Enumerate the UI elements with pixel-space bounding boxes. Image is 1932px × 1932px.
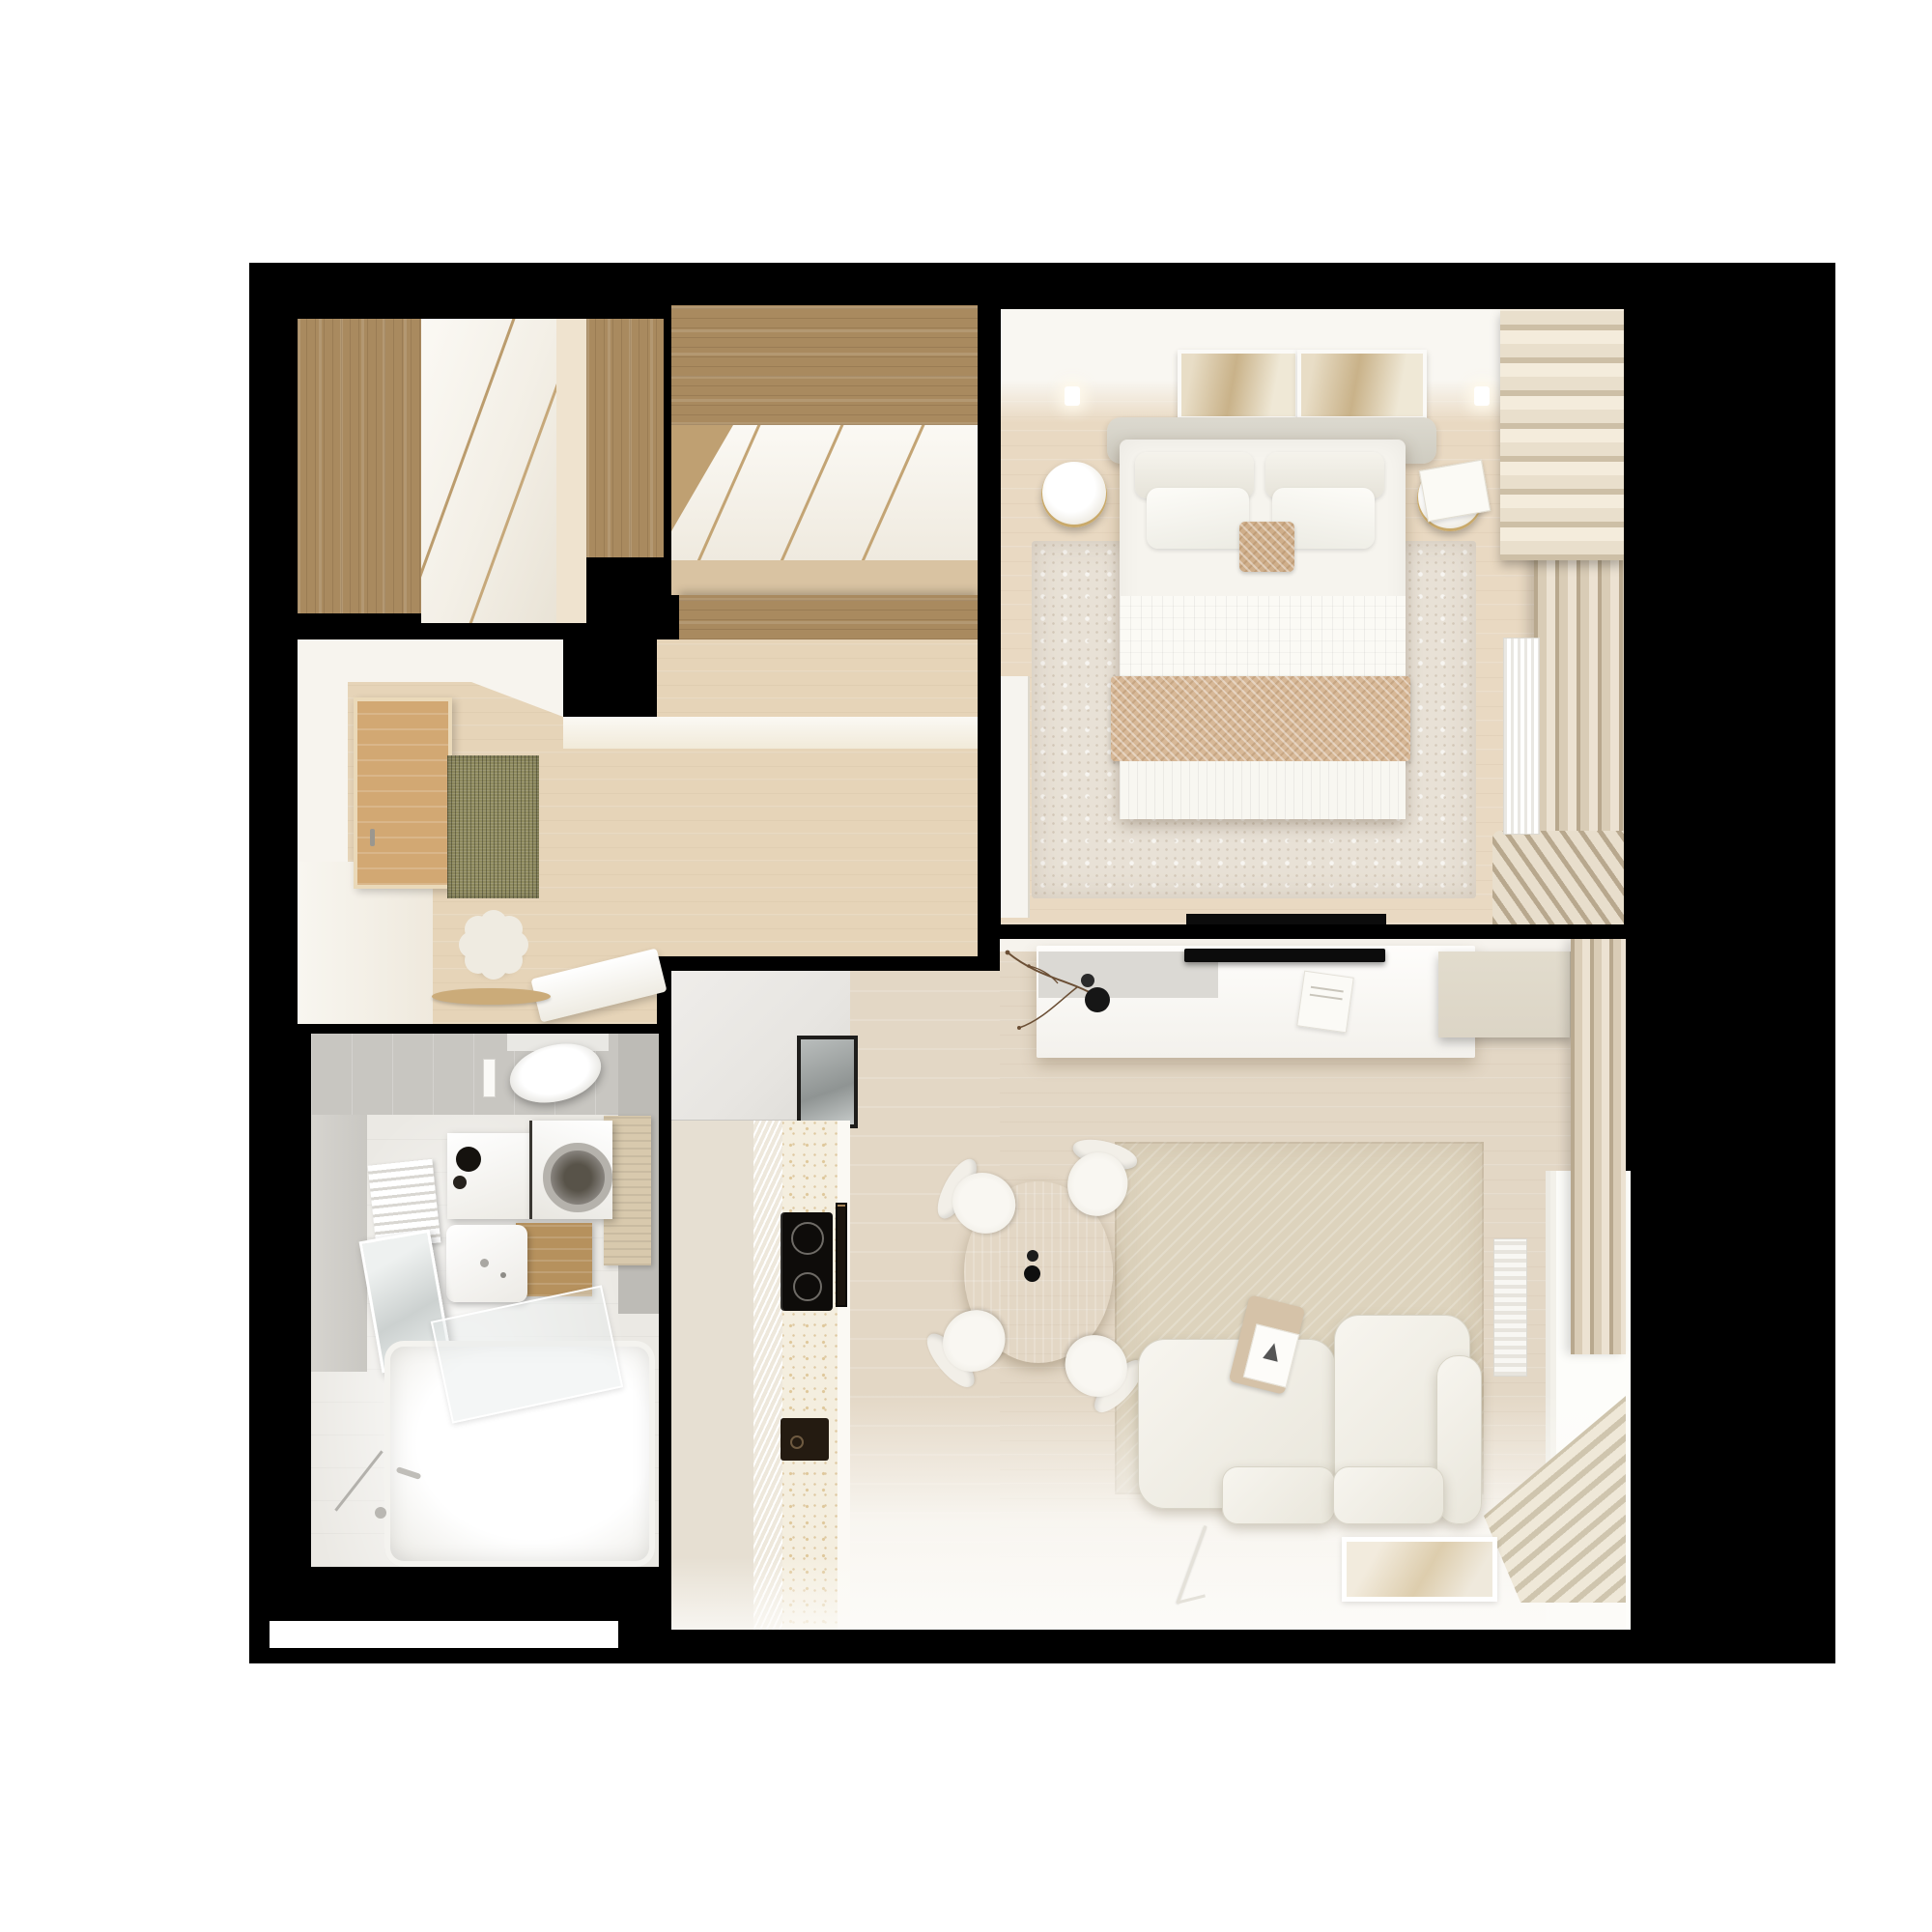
apartment-plan <box>249 263 1835 1663</box>
room-closet <box>298 319 664 623</box>
kitchen-wall-band <box>671 1121 753 1630</box>
entrance-door <box>354 697 452 889</box>
door-handle <box>370 829 375 846</box>
wall-tv <box>1184 949 1385 962</box>
sliding-door-edge <box>421 319 520 623</box>
bedroom-door-leaf <box>1001 676 1030 918</box>
table-vase <box>1024 1265 1040 1282</box>
nightstand-left <box>1041 462 1107 527</box>
living-curtains <box>1571 939 1626 1354</box>
black-accessory <box>453 1176 467 1189</box>
wall-tv-edge <box>1186 914 1386 924</box>
open-door-panel <box>671 425 733 531</box>
framed-artwork <box>1178 350 1299 420</box>
wall-segment <box>586 557 664 623</box>
poster-art <box>1347 1542 1492 1597</box>
sofa-seat-cushion <box>1333 1466 1444 1524</box>
slatted-radiator <box>1493 1238 1527 1377</box>
basin-faucet <box>480 1259 489 1267</box>
quilted-blanket <box>1120 596 1406 676</box>
quilted-blanket-foot <box>1120 761 1406 819</box>
counter-vent <box>836 1203 847 1307</box>
counter-edge <box>838 1121 850 1630</box>
book-text-line <box>1310 994 1343 1001</box>
sliding-door-edge <box>858 425 927 560</box>
black-vase-small <box>1081 974 1094 987</box>
shower-head <box>375 1507 386 1519</box>
poster-on-floor <box>1342 1537 1497 1602</box>
closet-wardrobe-right <box>586 319 664 557</box>
beige-storage-cabinet <box>1438 952 1571 1037</box>
room-bedroom <box>1001 309 1624 924</box>
hob-ring <box>791 1222 824 1255</box>
flower-pouf <box>467 918 521 972</box>
corridor-wall-band <box>563 717 978 749</box>
sink-drain <box>790 1435 804 1449</box>
hob-ring <box>793 1272 822 1301</box>
kitchen-glass-panel <box>797 1036 858 1128</box>
kitchen-sink <box>781 1418 829 1461</box>
black-basin-bowl <box>456 1147 481 1172</box>
roman-shade <box>1500 309 1624 560</box>
book-on-nightstand <box>1419 460 1491 523</box>
black-vase <box>1085 987 1110 1012</box>
scale-bar <box>270 1621 618 1648</box>
wardrobe-sliding-doors <box>671 425 978 560</box>
sliding-door-edge <box>777 425 846 560</box>
floor-plan-canvas <box>0 0 1932 1932</box>
sliding-door-edge <box>459 319 556 623</box>
closet-sliding-doors <box>421 319 556 623</box>
room-living-kitchen <box>671 939 1626 1630</box>
bedroom-radiator <box>1503 638 1540 835</box>
flush-plate <box>483 1059 496 1097</box>
sofa-seat-cushion <box>1222 1466 1335 1524</box>
room-bathroom <box>311 1034 659 1567</box>
shower-hose <box>334 1450 383 1511</box>
washing-machine-door <box>543 1143 612 1212</box>
fluted-cabinet-front <box>753 1121 782 1630</box>
floor-light-glow <box>671 1557 850 1630</box>
wall-segment <box>563 639 657 717</box>
terrazzo-counter <box>782 1121 838 1630</box>
wall-sconce <box>1065 386 1080 406</box>
book-text-line <box>1311 986 1344 993</box>
herringbone-throw <box>1111 676 1410 761</box>
book-on-sideboard <box>1296 971 1354 1034</box>
round-wood-tray <box>432 988 551 1005</box>
pillow <box>1147 488 1249 549</box>
induction-hob <box>781 1212 833 1311</box>
doormat <box>447 755 539 898</box>
wardrobe-floor <box>671 560 978 595</box>
wall-sconce <box>1474 386 1490 406</box>
basin-drain <box>500 1272 506 1278</box>
wall-segment <box>298 613 421 623</box>
wall-segment <box>671 956 1000 971</box>
lamp-glyph <box>1263 1341 1282 1361</box>
closet-floor-strip <box>556 319 586 623</box>
bedroom-curtain-bundle <box>1492 831 1624 924</box>
framed-artwork <box>1297 350 1427 420</box>
wardrobe-upper-cabinet <box>671 305 978 425</box>
table-vase-small <box>1027 1250 1038 1262</box>
accent-cushion <box>1239 522 1294 572</box>
closet-wardrobe-left <box>298 319 421 613</box>
